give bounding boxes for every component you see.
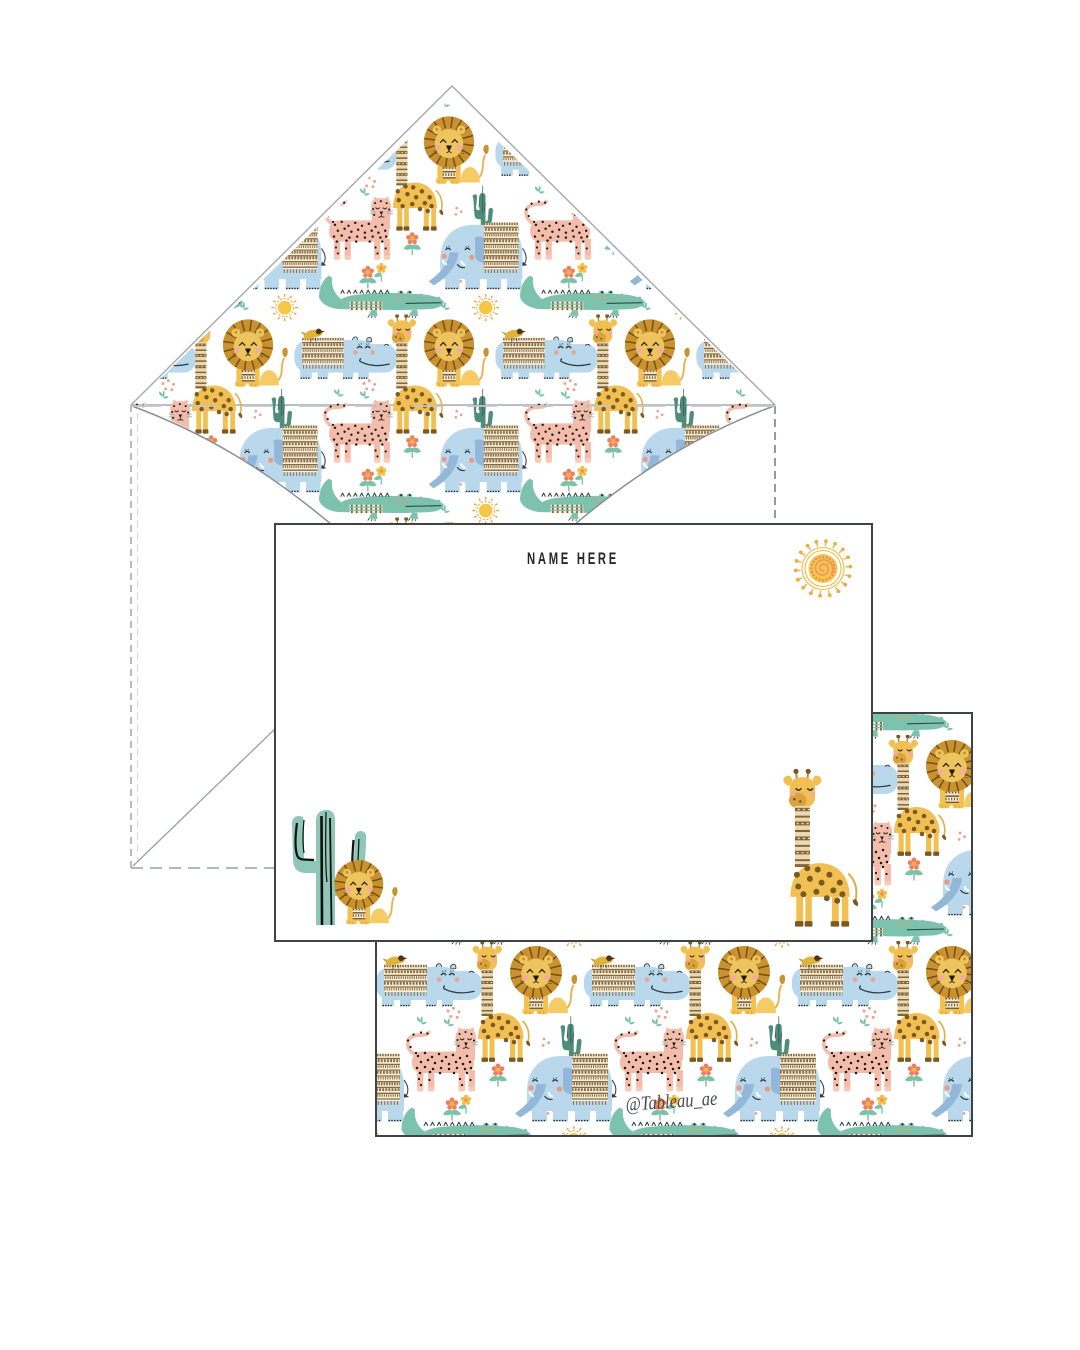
svg-text:NAME HERE: NAME HERE: [527, 550, 619, 568]
